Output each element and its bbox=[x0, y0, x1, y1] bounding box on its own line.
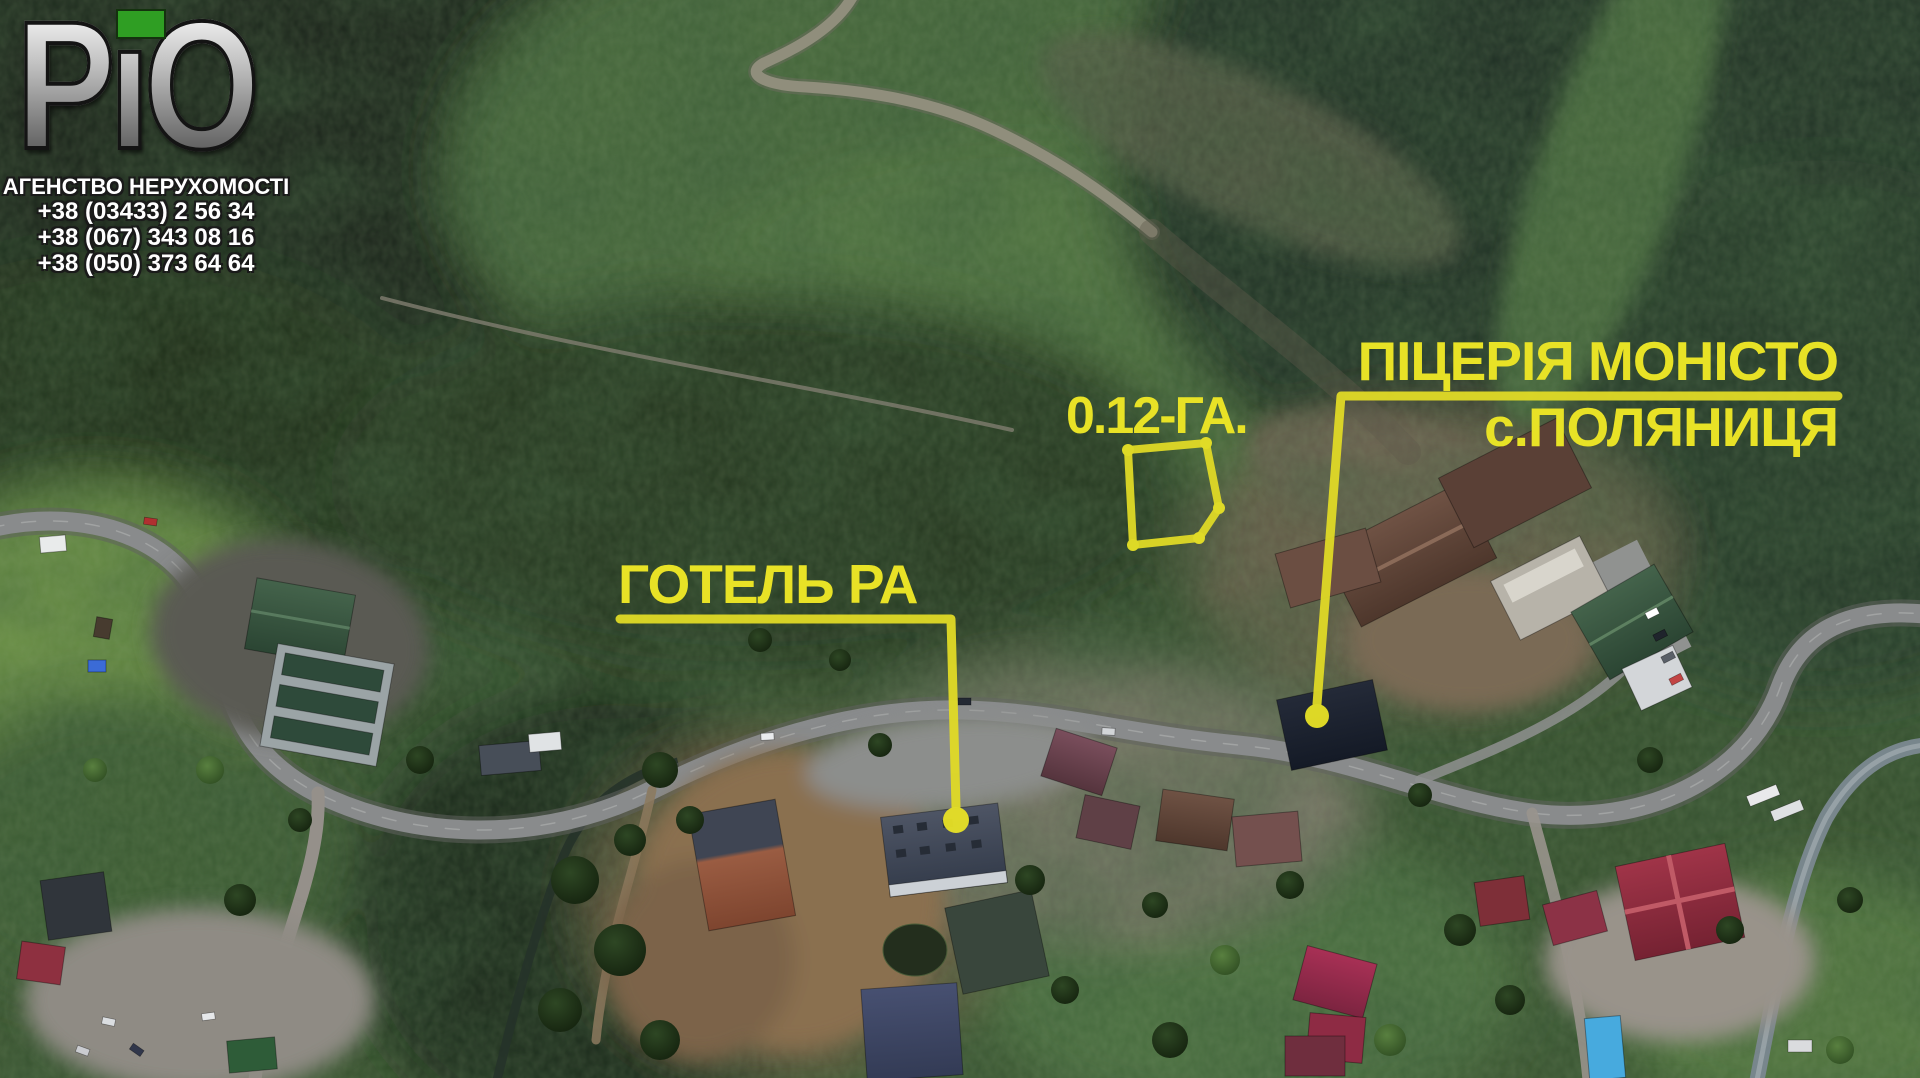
building-red-house bbox=[1474, 876, 1530, 927]
agency-phone-3: +38 (050) 373 64 64 bbox=[2, 250, 290, 278]
building-roadside-white bbox=[528, 732, 561, 753]
agency-phone-2: +38 (067) 343 08 16 bbox=[2, 224, 290, 252]
plot-vertex bbox=[1127, 539, 1139, 551]
pizzeria-pointer-dot bbox=[1305, 704, 1329, 728]
building-maroon-house bbox=[1285, 1036, 1345, 1076]
swimming-pool bbox=[1584, 1016, 1625, 1078]
building-white-hut bbox=[39, 535, 66, 553]
agency-phone-1: +38 (03433) 2 56 34 bbox=[2, 198, 290, 226]
pizzeria-label-line1: ПІЦЕРІЯ МОНІСТО bbox=[1358, 328, 1838, 394]
aerial-scene bbox=[0, 0, 1920, 1078]
pizzeria-label: ПІЦЕРІЯ МОНІСТО с.ПОЛЯНИЦЯ bbox=[1358, 328, 1838, 460]
hotel-label: ГОТЕЛЬ РА bbox=[618, 552, 918, 616]
building-dark-house bbox=[40, 872, 112, 940]
plot-vertex bbox=[1213, 502, 1225, 514]
pond bbox=[883, 924, 947, 976]
plot-area-label: 0.12-ГА. bbox=[1066, 386, 1247, 446]
building-meadow-hut bbox=[93, 617, 112, 639]
aerial-photo-ad: РіО АГЕНСТВО НЕРУХОМОСТІ +38 (03433) 2 5… bbox=[0, 0, 1920, 1078]
hotel-pointer-dot bbox=[943, 807, 969, 833]
plot-vertex bbox=[1193, 532, 1205, 544]
building-cottage bbox=[1156, 789, 1235, 851]
treatment-pools bbox=[260, 644, 394, 767]
building-dark-chalet bbox=[945, 890, 1049, 994]
pizzeria-label-line2: с.ПОЛЯНИЦЯ bbox=[1358, 394, 1838, 460]
building-blue-roof bbox=[861, 983, 963, 1078]
agency-tagline: АГЕНСТВО НЕРУХОМОСТІ bbox=[2, 174, 290, 200]
logo-green-dot bbox=[116, 9, 166, 39]
building-cottage bbox=[1232, 811, 1302, 867]
building-green-house bbox=[227, 1037, 278, 1073]
blue-tarp bbox=[88, 660, 106, 672]
building-red-house bbox=[17, 941, 66, 985]
